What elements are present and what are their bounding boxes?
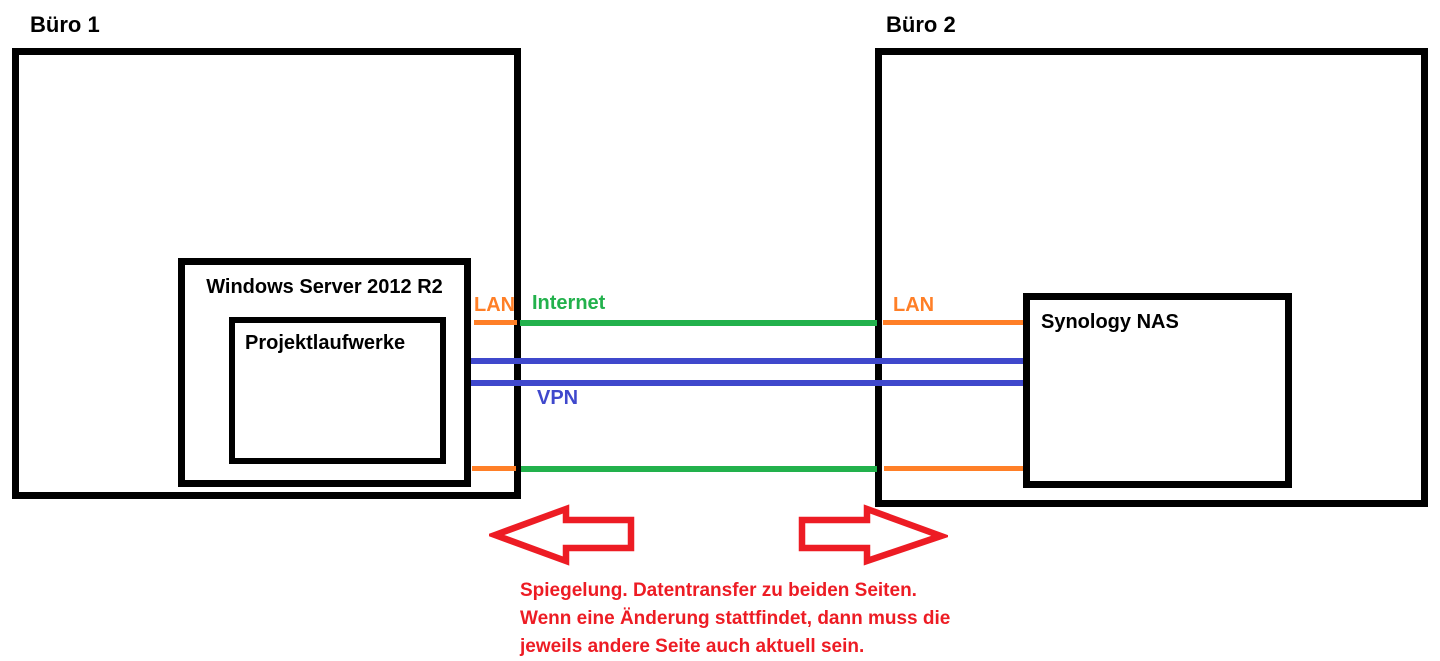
internet-line-top <box>520 320 877 326</box>
mirroring-note-line2: Wenn eine Änderung stattfindet, dann mus… <box>520 605 950 633</box>
lan-line-top-left <box>474 320 517 325</box>
windows-server-label: Windows Server 2012 R2 <box>178 276 471 299</box>
lan-label-office2: LAN <box>893 294 934 317</box>
right-arrow-icon <box>796 503 948 567</box>
internet-line-bottom <box>521 466 877 472</box>
mirroring-note-line1: Spiegelung. Datentransfer zu beiden Seit… <box>520 577 950 605</box>
mirroring-note: Spiegelung. Datentransfer zu beiden Seit… <box>520 577 950 661</box>
mirroring-note-line3: jeweils andere Seite auch aktuell sein. <box>520 633 950 661</box>
lan-line-bottom-left <box>472 466 516 471</box>
internet-label: Internet <box>532 292 605 315</box>
vpn-line-lower <box>471 380 1023 386</box>
lan-label-office1: LAN <box>474 294 515 317</box>
office2-title: Büro 2 <box>886 12 956 38</box>
lan-line-top-right <box>883 320 1023 325</box>
lan-line-bottom-right <box>884 466 1023 471</box>
office1-title: Büro 1 <box>30 12 100 38</box>
vpn-line-upper <box>471 358 1023 364</box>
project-drives-label: Projektlaufwerke <box>245 332 405 355</box>
left-arrow-icon <box>489 503 639 567</box>
network-diagram: Büro 1 Windows Server 2012 R2 Projektlau… <box>0 0 1440 661</box>
synology-nas-label: Synology NAS <box>1041 311 1179 334</box>
vpn-label: VPN <box>537 387 578 410</box>
